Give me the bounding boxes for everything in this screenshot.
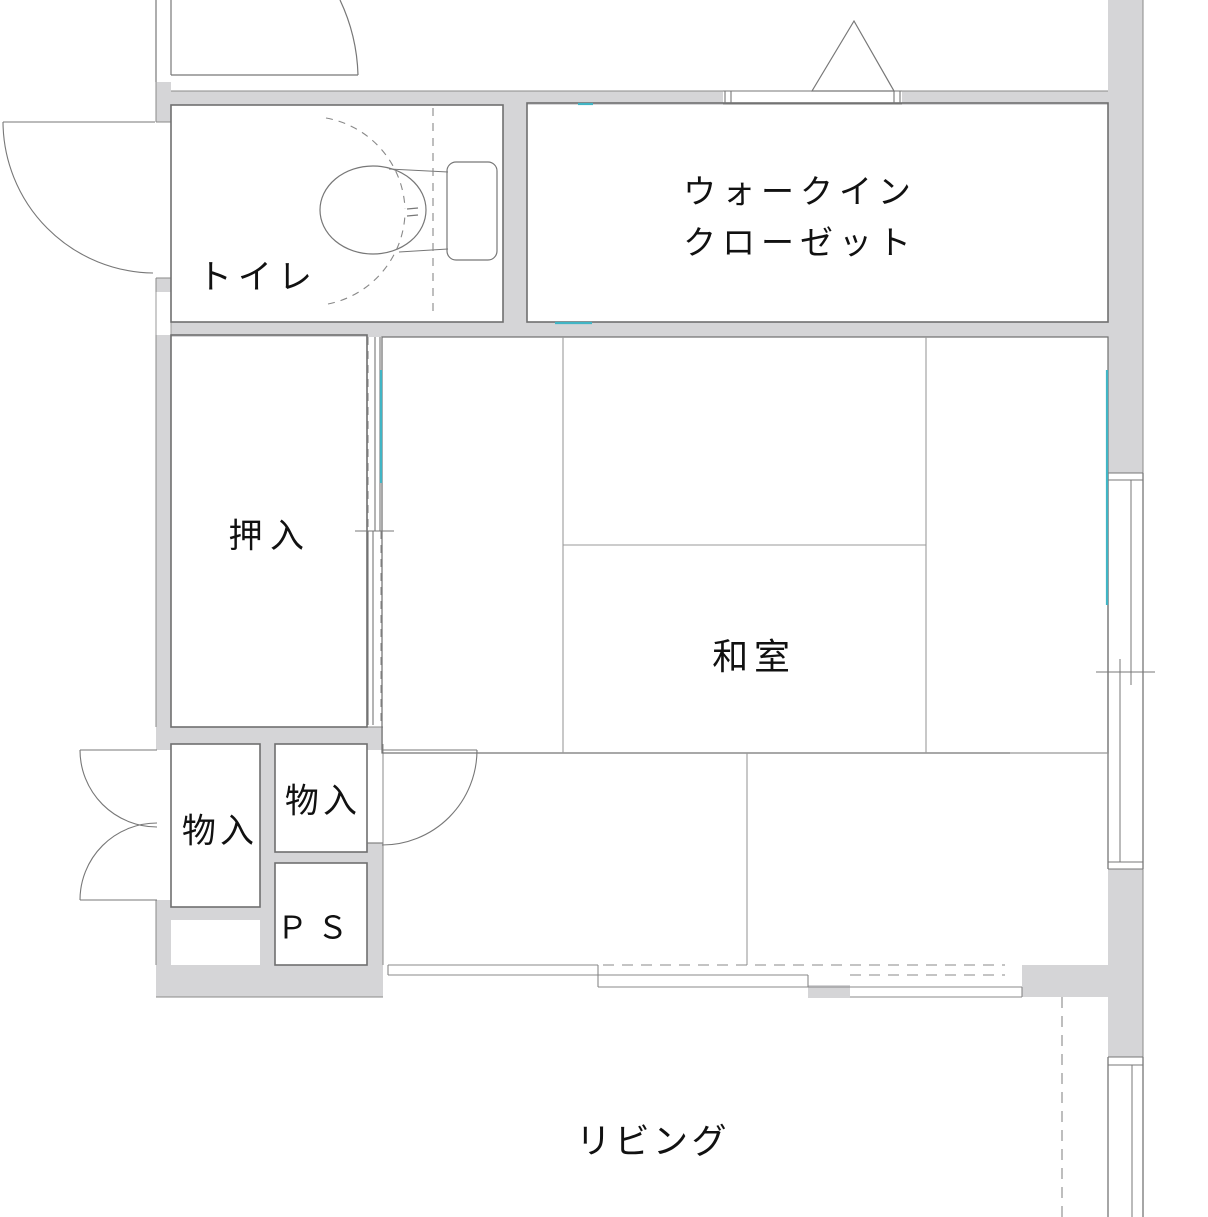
room-label-walk-in-closet-line1: ウォークイン xyxy=(683,166,917,217)
floor-plan: トイレ ウォークイン クローゼット 押入 和室 物入 物入 ＰＳ リビング xyxy=(0,0,1208,1217)
wall-band-oshiire-bottom xyxy=(156,727,383,744)
wall-stub-ps-top xyxy=(367,744,383,750)
room-label-living: リビング xyxy=(576,1114,730,1165)
triangle-marker-icon xyxy=(812,21,894,91)
wall-stub-left xyxy=(156,744,171,750)
wall-right-mid xyxy=(1108,869,1143,1057)
wall-left-d xyxy=(156,900,171,965)
wall-block-living-b xyxy=(1022,965,1108,997)
room-outlines xyxy=(171,103,1108,965)
top-left-room xyxy=(156,0,358,82)
door-arc-storage xyxy=(382,750,477,845)
door-arc-entrance xyxy=(3,122,153,273)
wall-left-c xyxy=(156,335,171,727)
room-label-walk-in-closet: ウォークイン クローゼット xyxy=(683,166,917,268)
door-arc-double-bottom xyxy=(80,823,157,900)
wall-edges xyxy=(156,0,1143,1217)
wall-left-a xyxy=(156,82,171,122)
wall-bottom-band xyxy=(156,965,383,997)
door-arc-top-room xyxy=(340,0,358,75)
window-right-upper xyxy=(1096,473,1155,869)
fusuma-sliding-door xyxy=(355,337,394,725)
wall-storage2-ps-divider xyxy=(275,852,383,863)
wall-left-b xyxy=(156,278,171,292)
room-label-oshiire: 押入 xyxy=(229,509,312,558)
room-label-storage-left: 物入 xyxy=(182,804,258,853)
wall-storage-divider xyxy=(260,744,275,965)
living-boundary xyxy=(388,965,1062,1217)
floor-plan-drawing xyxy=(0,0,1208,1217)
toilet-fixture-icon xyxy=(320,162,497,260)
room-label-toilet: トイレ xyxy=(198,250,318,299)
window-right-lower xyxy=(1108,1057,1143,1217)
room-label-pipe-space: ＰＳ xyxy=(277,903,358,948)
door-arc-double-top xyxy=(80,750,157,827)
room-label-walk-in-closet-line2: クローゼット xyxy=(683,217,917,268)
wall-storage1-bottom xyxy=(171,907,260,920)
closet-top-opening xyxy=(723,91,902,104)
room-label-storage-upper: 物入 xyxy=(285,774,361,823)
wall-toilet-closet-divider xyxy=(503,105,527,322)
room-label-washitsu: 和室 xyxy=(712,628,796,680)
wall-right-top xyxy=(1108,0,1143,473)
wall-ps-right xyxy=(367,843,383,965)
